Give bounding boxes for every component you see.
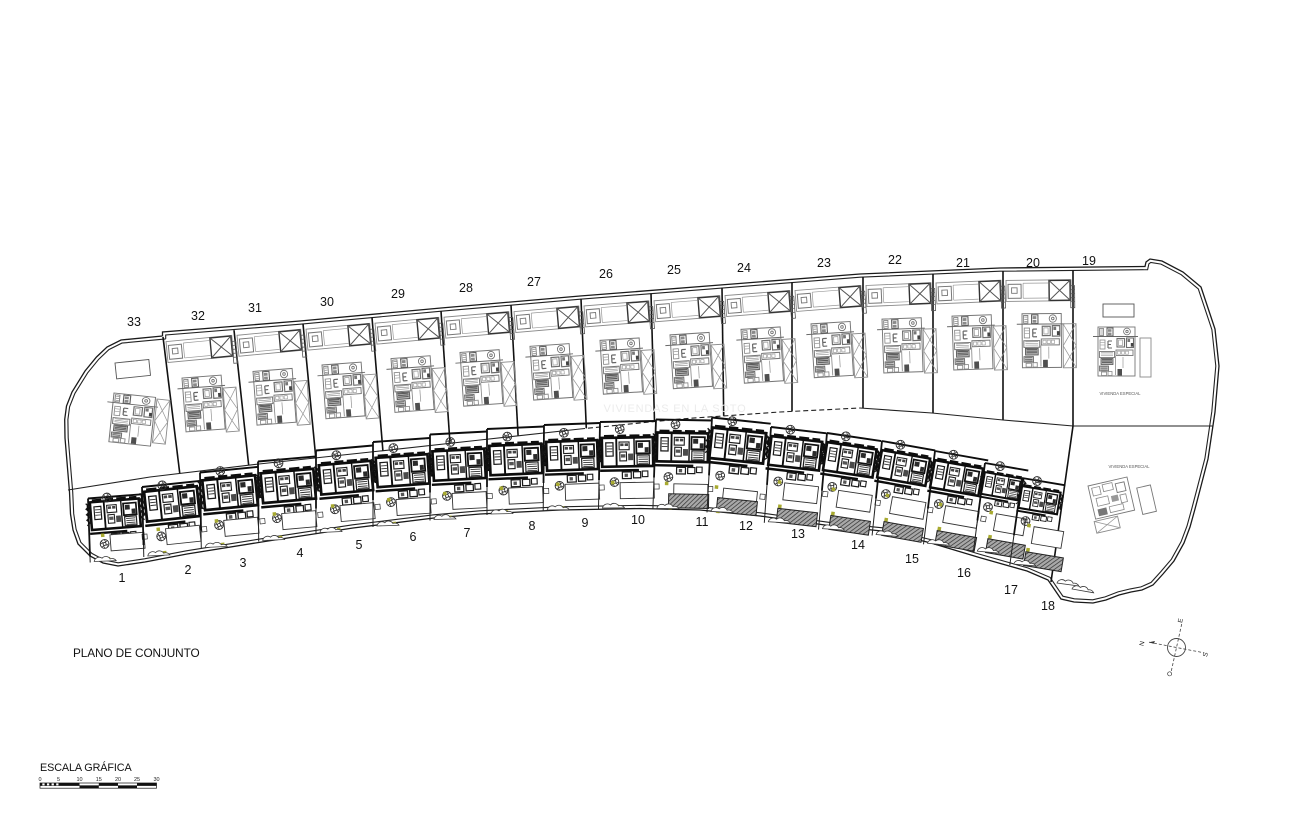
svg-text:33: 33 — [127, 315, 141, 329]
svg-text:22: 22 — [888, 253, 902, 267]
svg-text:26: 26 — [599, 267, 613, 281]
svg-text:10: 10 — [76, 777, 82, 783]
svg-text:18: 18 — [1041, 599, 1055, 613]
svg-text:2: 2 — [185, 563, 192, 577]
svg-text:3: 3 — [240, 556, 247, 570]
svg-text:21: 21 — [956, 256, 970, 270]
svg-text:14: 14 — [851, 538, 865, 552]
svg-text:23: 23 — [817, 256, 831, 270]
svg-text:10: 10 — [631, 513, 645, 527]
svg-text:6: 6 — [410, 530, 417, 544]
svg-text:20: 20 — [115, 777, 121, 783]
svg-text:12: 12 — [739, 519, 753, 533]
svg-text:20: 20 — [1026, 256, 1040, 270]
svg-text:13: 13 — [791, 527, 805, 541]
svg-text:27: 27 — [527, 275, 541, 289]
svg-text:PLANO DE CONJUNTO: PLANO DE CONJUNTO — [73, 646, 200, 660]
svg-text:24: 24 — [737, 261, 751, 275]
svg-text:9: 9 — [582, 516, 589, 530]
svg-text:15: 15 — [96, 777, 102, 783]
svg-text:5: 5 — [57, 777, 60, 783]
svg-text:0: 0 — [38, 777, 41, 783]
svg-text:ESCALA GRÁFICA: ESCALA GRÁFICA — [40, 761, 133, 774]
svg-text:31: 31 — [248, 301, 262, 315]
svg-text:1: 1 — [119, 571, 126, 585]
svg-text:VIVIENDA ESPECIAL: VIVIENDA ESPECIAL — [1100, 391, 1142, 396]
svg-text:19: 19 — [1082, 254, 1096, 268]
svg-text:25: 25 — [667, 263, 681, 277]
svg-text:25: 25 — [134, 777, 140, 783]
svg-text:28: 28 — [459, 281, 473, 295]
svg-text:30: 30 — [153, 777, 159, 783]
svg-text:8: 8 — [529, 519, 536, 533]
svg-text:30: 30 — [320, 295, 334, 309]
svg-text:VIVIENDAS EN LA SOTO: VIVIENDAS EN LA SOTO — [604, 403, 747, 415]
svg-text:4: 4 — [297, 546, 304, 560]
svg-text:17: 17 — [1004, 583, 1018, 597]
svg-text:29: 29 — [391, 287, 405, 301]
svg-text:VIVIENDA ESPECIAL: VIVIENDA ESPECIAL — [1109, 464, 1151, 469]
svg-text:16: 16 — [957, 566, 971, 580]
svg-text:11: 11 — [696, 515, 709, 529]
svg-text:15: 15 — [905, 552, 919, 566]
svg-text:32: 32 — [191, 309, 205, 323]
svg-text:7: 7 — [464, 526, 471, 540]
svg-text:5: 5 — [356, 538, 363, 552]
